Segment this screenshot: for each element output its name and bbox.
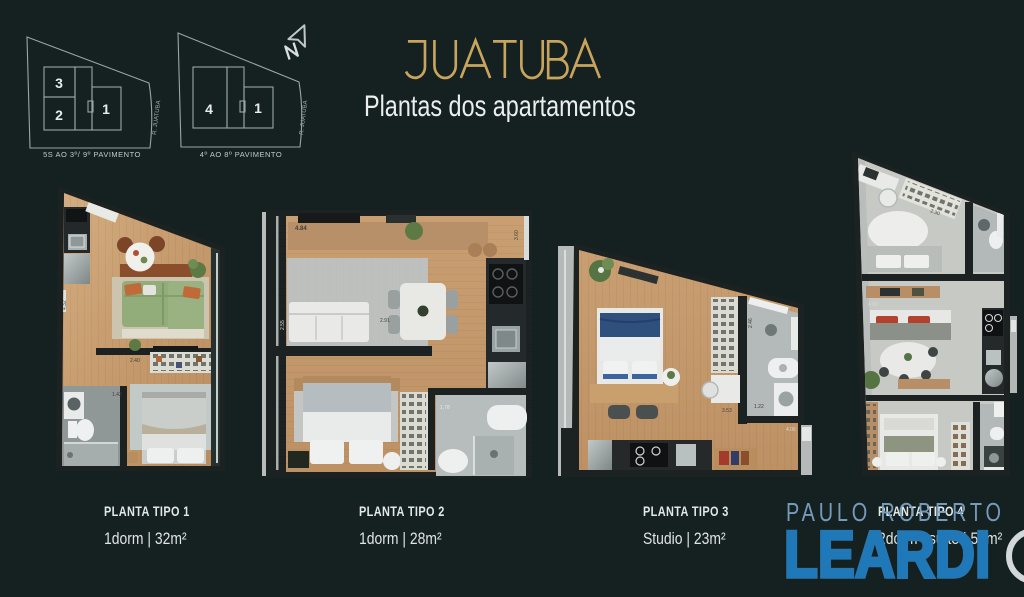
- svg-text:1.78: 1.78: [440, 405, 450, 411]
- svg-text:4.84: 4.84: [295, 226, 307, 232]
- svg-text:2.46: 2.46: [748, 318, 754, 328]
- svg-text:R. JUATUBA: R. JUATUBA: [152, 100, 162, 135]
- svg-text:1.22: 1.22: [754, 404, 764, 410]
- svg-text:1.42: 1.42: [112, 392, 122, 398]
- svg-text:3: 3: [55, 75, 63, 91]
- svg-text:4.06: 4.06: [786, 427, 796, 433]
- svg-text:1: 1: [254, 100, 262, 116]
- svg-text:5S AO 3º/ 9º PAVIMENTO: 5S AO 3º/ 9º PAVIMENTO: [43, 150, 141, 159]
- svg-text:1: 1: [102, 101, 110, 117]
- svg-text:4º AO 8º PAVIMENTO: 4º AO 8º PAVIMENTO: [200, 150, 282, 159]
- svg-text:3.60: 3.60: [514, 230, 520, 240]
- svg-text:2.55: 2.55: [280, 320, 286, 330]
- svg-text:2.40: 2.40: [130, 358, 140, 364]
- svg-text:3.53: 3.53: [722, 408, 732, 414]
- svg-text:R. JUATUBA: R. JUATUBA: [299, 100, 309, 135]
- svg-text:2: 2: [55, 107, 63, 123]
- svg-text:4.80: 4.80: [868, 302, 878, 308]
- svg-text:4: 4: [205, 101, 213, 117]
- svg-text:2.91: 2.91: [380, 318, 390, 324]
